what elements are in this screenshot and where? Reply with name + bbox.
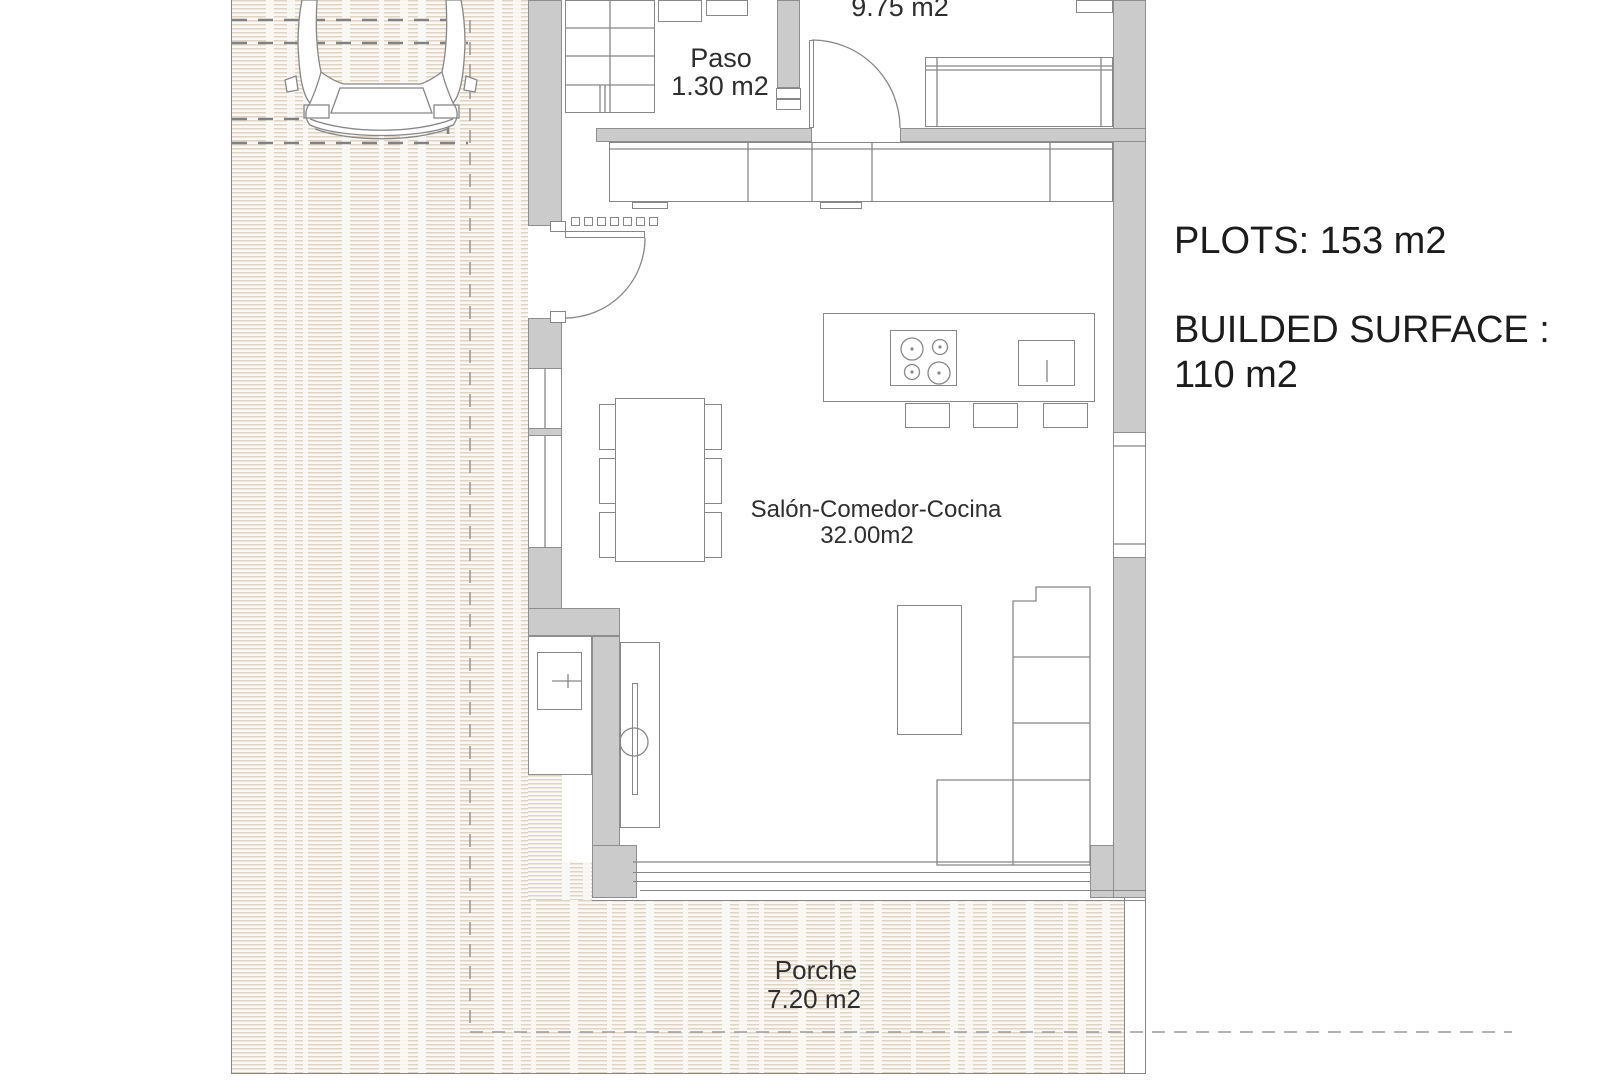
car-icon xyxy=(285,0,477,139)
floor-plan-page: 9.75 m2 Paso 1.30 m2 Salón-Comedor-Cocin… xyxy=(0,0,1620,1080)
appliance-tick xyxy=(552,674,582,688)
counter-division-lines xyxy=(609,142,1113,202)
bedroom-door-arc xyxy=(812,40,900,128)
plots-annotation: PLOTS: 153 m2 xyxy=(1174,220,1446,263)
porche-name-label: Porche xyxy=(775,957,857,984)
builded-surface-line1: BUILDED SURFACE : xyxy=(1174,308,1550,353)
bedroom-area-label: 9.75 m2 xyxy=(851,0,949,21)
plan-linework xyxy=(0,0,1620,1080)
wardrobe-rail-lines xyxy=(925,57,1113,127)
setback-dashed-lines xyxy=(470,20,1512,1032)
paso-name-label: Paso xyxy=(690,44,752,72)
storage-grid-lines xyxy=(565,0,655,113)
salon-name-label: Salón-Comedor-Cocina xyxy=(751,497,1002,522)
paso-area-label: 1.30 m2 xyxy=(671,72,769,100)
cooktop-burners xyxy=(901,338,950,384)
builded-surface-line2: 110 m2 xyxy=(1174,353,1550,398)
builded-surface-annotation: BUILDED SURFACE : 110 m2 xyxy=(1174,308,1550,398)
right-window-ticks xyxy=(1113,446,1146,544)
porche-area-label: 7.20 m2 xyxy=(767,986,861,1013)
sofa xyxy=(937,587,1090,865)
salon-area-label: 32.00m2 xyxy=(820,523,913,548)
entry-door-arc xyxy=(565,238,645,318)
tv-detail-circle xyxy=(620,728,648,756)
